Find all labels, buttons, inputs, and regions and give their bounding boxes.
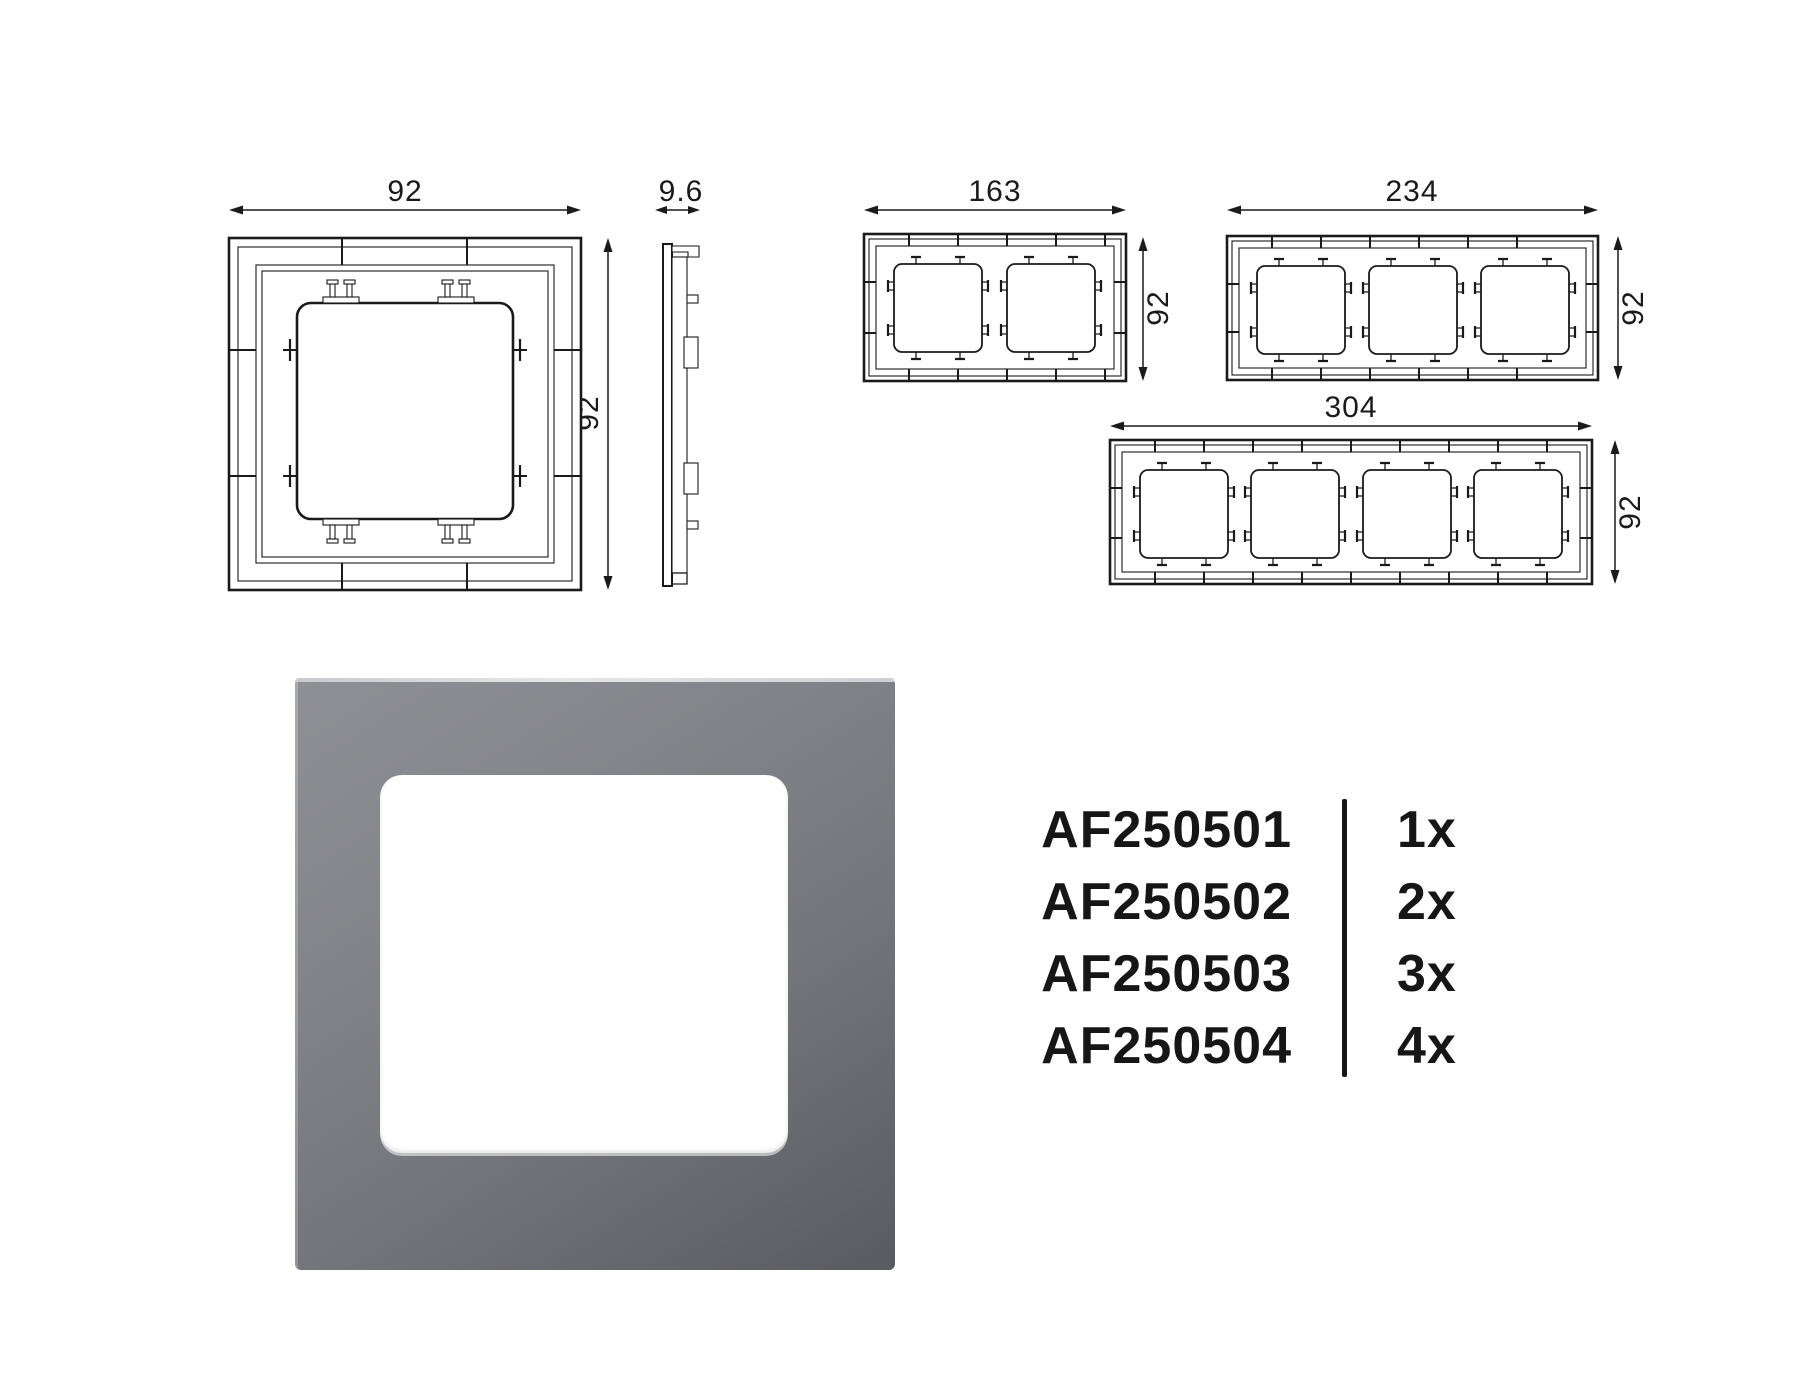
arrowhead-right: [567, 206, 581, 215]
product-code-list: AF250501 1x AF250502 2x AF250503 3x AF25…: [962, 794, 1567, 1082]
product-code: AF250502: [962, 872, 1292, 932]
arrowhead-up: [604, 238, 613, 252]
product-code: AF250503: [962, 944, 1292, 1004]
dim-width-4gang: 304: [1324, 391, 1377, 424]
technical-drawings: 92 92: [0, 0, 1800, 660]
arrowhead-down: [604, 576, 613, 590]
product-code: AF250501: [962, 800, 1292, 860]
dim-height-3gang: 92: [1617, 290, 1650, 325]
module-opening-large: [297, 303, 513, 519]
front-view-2gang-drawing: 163 92: [864, 175, 1175, 381]
hatched-section: [684, 463, 698, 494]
side-view-drawing: 9.6: [655, 175, 703, 586]
quantity: 2x: [1397, 872, 1567, 932]
dim-width-2gang: 163: [968, 175, 1021, 208]
product-spec-sheet: 92 92: [0, 0, 1800, 1400]
quantity: 4x: [1397, 1016, 1567, 1076]
front-view-1gang-drawing: 92 92: [229, 175, 613, 590]
dim-width-1gang: 92: [387, 175, 422, 208]
product-code: AF250504: [962, 1016, 1292, 1076]
dim-depth-side: 9.6: [659, 175, 704, 208]
hatched-section: [684, 337, 698, 368]
list-divider-line: [1342, 799, 1347, 1077]
front-view-3gang-drawing: 234 92: [1227, 175, 1650, 380]
product-photo-window: [380, 775, 788, 1153]
dim-width-3gang: 234: [1385, 175, 1438, 208]
front-view-4gang-drawing: 304 92: [1110, 391, 1647, 584]
dim-height-2gang: 92: [1142, 290, 1175, 325]
quantity: 1x: [1397, 800, 1567, 860]
dim-height-4gang: 92: [1614, 494, 1647, 529]
arrowhead-left: [229, 206, 243, 215]
quantity: 3x: [1397, 944, 1567, 1004]
product-photo: [295, 678, 895, 1270]
